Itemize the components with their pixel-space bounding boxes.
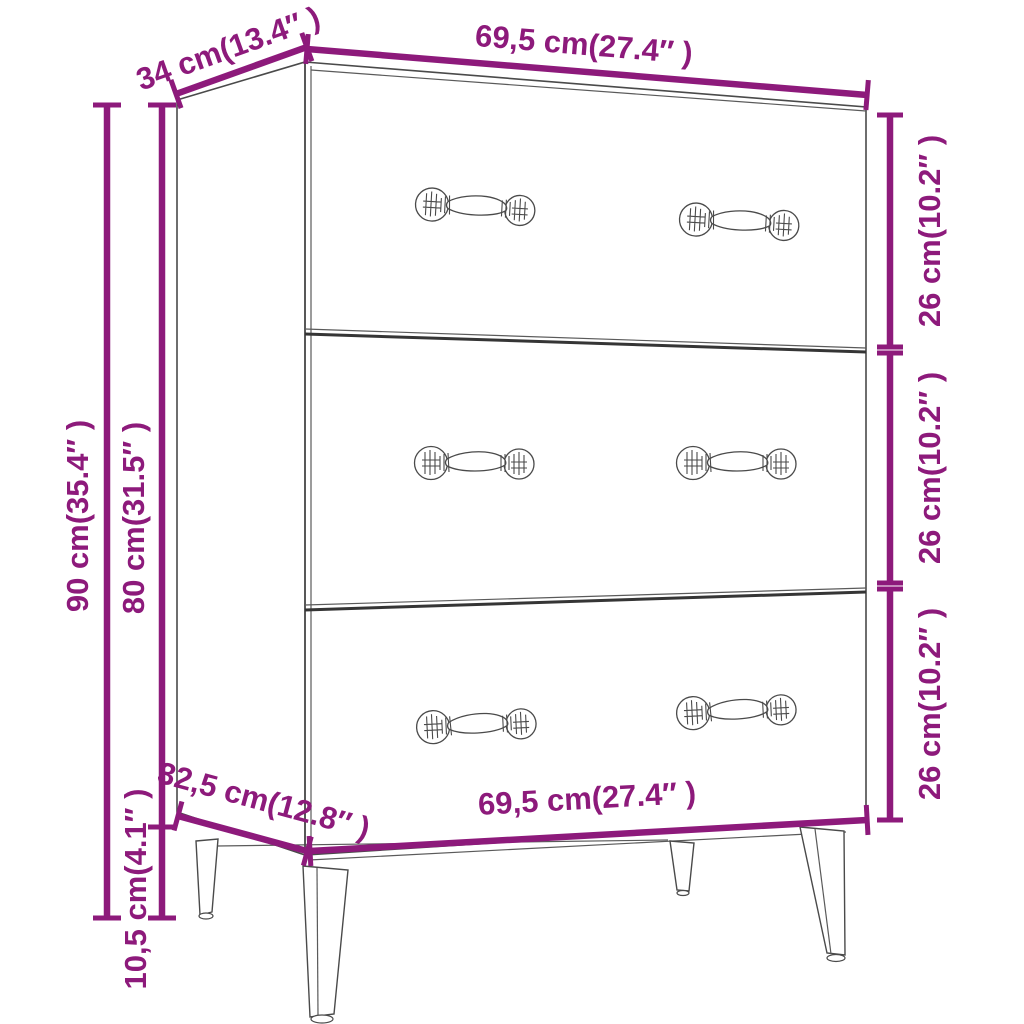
drawer-1-handle-right — [679, 202, 800, 242]
cabinet-side-panel — [177, 62, 305, 855]
dim-body-height-line — [148, 105, 176, 827]
bottom-width-label: 69,5 cm(27.4″ ) — [477, 775, 697, 822]
drawer-3-handle-left — [416, 706, 537, 745]
drawer-divider-2 — [305, 588, 866, 610]
leg-front-left — [303, 866, 348, 1023]
dimension-diagram: 34 cm(13.4″ ) 69,5 cm(27.4″ ) 26 cm(10.2… — [0, 0, 1024, 1024]
drawer-3-height-label: 26 cm(10.2″ ) — [912, 608, 947, 800]
drawer-2-height-label: 26 cm(10.2″ ) — [912, 372, 947, 564]
body-height-label: 80 cm(31.5″ ) — [116, 422, 151, 614]
dim-drawer-2-line — [877, 353, 903, 583]
leg-back-right — [670, 841, 694, 896]
diagram-canvas: 34 cm(13.4″ ) 69,5 cm(27.4″ ) 26 cm(10.2… — [0, 0, 1024, 1024]
drawer-3-handle-right — [676, 692, 797, 731]
bottom-depth-label: 32,5 cm(12.8″ ) — [154, 755, 374, 846]
dim-drawer-1-line — [877, 115, 903, 347]
drawer-1-height-label: 26 cm(10.2″ ) — [912, 135, 947, 327]
leg-height-label: 10,5 cm(4.1″ ) — [118, 789, 153, 990]
leg-front-right — [800, 827, 845, 962]
drawer-1-handle-left — [415, 187, 536, 227]
overall-height-label: 90 cm(35.4″ ) — [60, 420, 95, 612]
drawer-divider-1 — [305, 329, 866, 352]
dim-drawer-3-line — [877, 589, 903, 820]
leg-back-left — [196, 839, 218, 919]
drawer-2-handle-left — [415, 447, 535, 480]
drawer-2-handle-right — [677, 447, 797, 480]
